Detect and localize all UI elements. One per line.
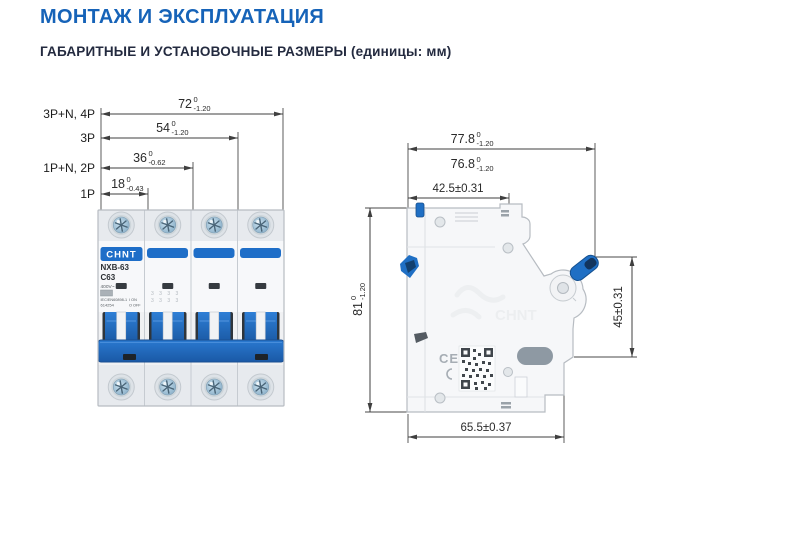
dim-42-5: 42.5±0.31 [408,183,509,200]
dim-81-tol-upper: 0 [349,296,358,300]
dim-18-tol-upper: 0 [127,175,131,184]
top-rail-clip [416,203,424,217]
dim-65-5: 65.5±0.37 [408,422,564,439]
dim-36-tol-lower: -0.62 [149,158,166,167]
bottom-terminal-barrel [515,377,527,397]
breaker-side-view: CHNT CE [400,203,601,412]
dim-81-tol-lower: -1.20 [358,283,367,300]
brand-logo-text: CHNT [106,250,136,261]
page-title: МОНТАЖ И ЭКСПЛУАТАЦИЯ [40,6,324,29]
dim-45: 45±0.31 [613,257,634,357]
dim-72: 72 0 -1.20 [101,95,283,116]
dim-18: 18 0 -0.43 [101,175,148,196]
dim-72-value: 72 [178,97,192,111]
side-view-diagram: 77.8 0 -1.20 76.8 0 -1.20 42.5±0.31 81 0… [345,105,675,455]
dim-77-8: 77.8 0 -1.20 [408,130,595,151]
dim-72-tol-lower: -1.20 [194,104,211,113]
dim-76-8: 76.8 0 -1.20 [451,155,494,173]
dim-18-tol-lower: -0.43 [127,184,144,193]
breaker-front-view: CHNT NXB-63 C63 400V~ IEC/EN60898-1 6142… [98,210,284,406]
pole-labels: 3P+N, 4P 3P 1P+N, 2P 1P [43,107,95,201]
svg-text:CE: CE [439,351,459,366]
page: { "page": { "title": "МОНТАЖ И ЭКСПЛУАТА… [0,0,785,538]
front-view-diagram: 3P+N, 4P 3P 1P+N, 2P 1P 72 0 -1.20 54 0 … [34,88,334,423]
dim-54-tol-upper: 0 [172,119,176,128]
dim-76-8-tol-upper: 0 [477,155,481,164]
mold-marks-row2: 3 3 3 3 [151,298,180,304]
on-mark: I ON [129,298,137,302]
dim-76-8-value: 76.8 [451,157,475,171]
dim-36-value: 36 [133,151,147,165]
off-mark: O OFF [129,304,141,308]
dim-18-value: 18 [111,177,125,191]
mounting-slot [517,347,553,365]
dim-45-value: 45±0.31 [613,286,625,328]
handle-module-1[interactable] [103,312,141,342]
handle-module-2[interactable] [149,312,187,342]
dim-36: 36 0 -0.62 [101,149,193,170]
pole-label-2p: 1P+N, 2P [43,161,95,175]
dim-81: 81 0 -1.20 [349,208,372,412]
dim-72-tol-upper: 0 [194,95,198,104]
rating-text: C63 [101,273,116,282]
pole-label-1p: 1P [80,187,95,201]
pole-label-3p: 3P [80,131,95,145]
dim-54: 54 0 -1.20 [101,119,238,140]
voltage-text: 400V~ [101,284,115,290]
module-stripes [147,248,281,258]
side-toggle-handle[interactable] [567,252,601,283]
standard-text: IEC/EN60898-1 [101,298,128,302]
dim-81-value: 81 [351,302,365,316]
dim-76-8-tol-lower: -1.20 [477,164,494,173]
qr-code [459,346,495,391]
code-text: 614254 [101,303,115,308]
emboss-brand-text: CHNT [495,307,537,324]
dim-42-5-value: 42.5±0.31 [432,183,483,195]
dim-54-tol-lower: -1.20 [172,128,189,137]
dim-54-value: 54 [156,121,170,135]
dim-77-8-tol-upper: 0 [477,130,481,139]
pole-label-4p: 3P+N, 4P [43,107,95,121]
handle-tie-bar[interactable] [98,340,284,362]
handle-module-3[interactable] [196,312,234,342]
dim-65-5-value: 65.5±0.37 [460,422,511,434]
dim-36-tol-upper: 0 [149,149,153,158]
extension-lines [101,108,283,210]
certification-badge [101,290,113,296]
mold-marks-row1: 3 3 3 3 [151,291,180,297]
handle-module-4[interactable] [242,312,280,342]
dim-77-8-tol-lower: -1.20 [477,139,494,148]
toggle-pivot-boss [550,275,576,301]
model-text: NXB-63 [101,263,130,272]
dim-77-8-value: 77.8 [451,132,475,146]
page-subtitle: ГАБАРИТНЫЕ И УСТАНОВОЧНЫЕ РАЗМЕРЫ (едини… [40,44,451,59]
